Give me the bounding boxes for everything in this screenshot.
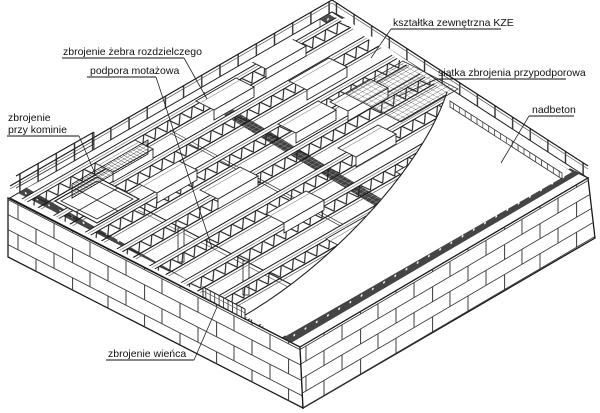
floor-assembly-diagram: zbrojenie żebra rozdzielczegopodpora mot… — [0, 0, 600, 413]
label-text-zbrojenie-przy-kominie-0: zbrojenie — [8, 112, 51, 124]
label-text-siatka-przypodporowa: siatka zbrojenia przypodporowa — [438, 67, 586, 79]
diagram-page: zbrojenie żebra rozdzielczegopodpora mot… — [0, 0, 600, 413]
label-text-nadbeton: nadbeton — [532, 104, 576, 116]
label-text-podpora-montazowa: podpora motażowa — [90, 65, 179, 77]
label-text-ksztaltka-kze: kształtka zewnętrzna KZE — [393, 17, 514, 29]
label-text-zbrojenie-przy-kominie-1: przy kominie — [8, 124, 67, 136]
label-text-zebro-rozdzielcze: zbrojenie żebra rozdzielczego — [63, 46, 202, 58]
label-text-zbrojenie-wienca: zbrojenie wieńca — [108, 348, 186, 360]
